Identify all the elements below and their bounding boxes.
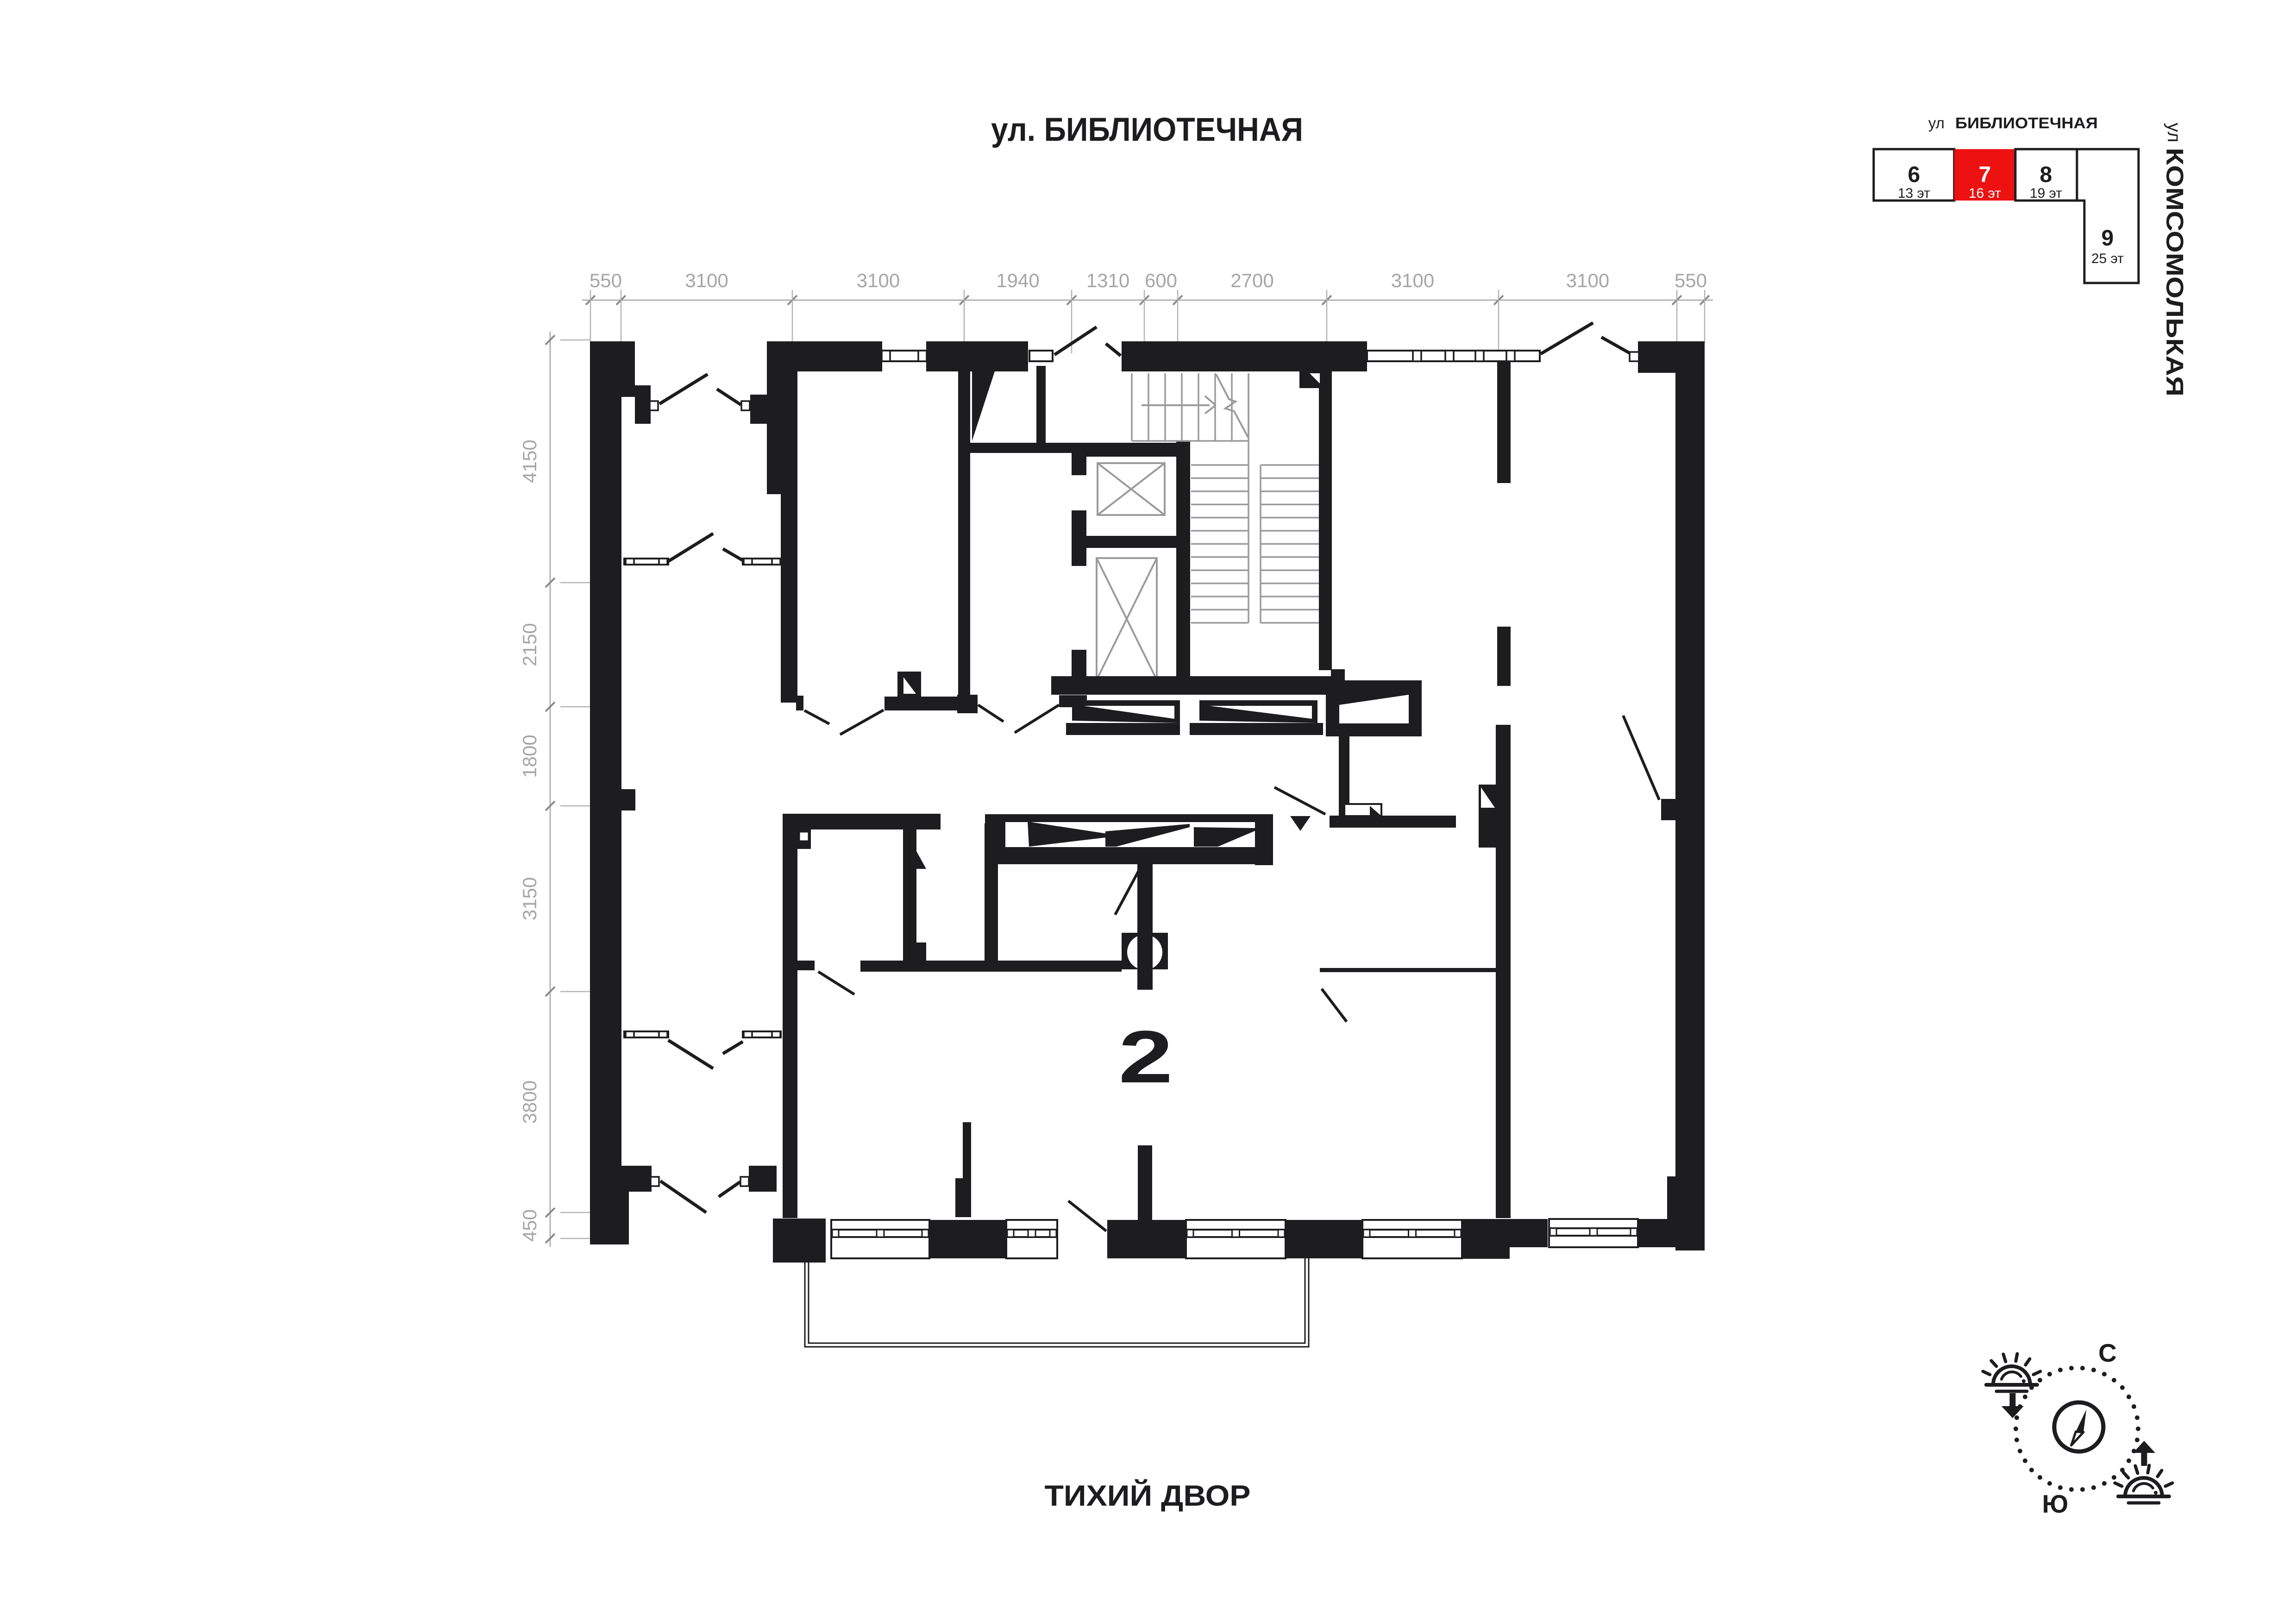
svg-text:3150: 3150	[519, 877, 540, 920]
svg-text:25 эт: 25 эт	[2091, 251, 2124, 266]
svg-text:4150: 4150	[519, 440, 540, 483]
svg-text:3100: 3100	[1391, 270, 1434, 291]
svg-text:3800: 3800	[519, 1081, 540, 1124]
svg-text:ТИХИЙ ДВОР: ТИХИЙ ДВОР	[1045, 1479, 1251, 1512]
svg-text:6: 6	[1908, 163, 1920, 187]
svg-text:С: С	[2098, 1338, 2117, 1367]
svg-text:550: 550	[590, 270, 622, 291]
svg-text:ул: ул	[2164, 123, 2184, 142]
svg-text:19 эт: 19 эт	[2030, 186, 2062, 201]
svg-text:ул. БИБЛИОТЕЧНАЯ: ул. БИБЛИОТЕЧНАЯ	[991, 112, 1303, 148]
svg-text:7: 7	[1979, 163, 1991, 187]
svg-text:КОМСОМОЛЬКАЯ: КОМСОМОЛЬКАЯ	[2161, 148, 2188, 396]
svg-text:450: 450	[519, 1209, 540, 1242]
svg-text:600: 600	[1145, 270, 1177, 291]
svg-text:3100: 3100	[857, 270, 900, 291]
svg-text:1310: 1310	[1086, 270, 1129, 291]
svg-text:3100: 3100	[1566, 270, 1609, 291]
svg-text:16 эт: 16 эт	[1969, 186, 2001, 201]
svg-text:2150: 2150	[519, 623, 540, 666]
svg-text:БИБЛИОТЕЧНАЯ: БИБЛИОТЕЧНАЯ	[1955, 114, 2098, 132]
svg-text:2: 2	[1118, 1015, 1173, 1098]
svg-text:9: 9	[2102, 226, 2114, 251]
svg-text:550: 550	[1675, 270, 1707, 291]
svg-text:Ю: Ю	[2042, 1489, 2069, 1518]
svg-text:8: 8	[2040, 163, 2052, 187]
svg-text:1800: 1800	[519, 735, 540, 778]
svg-text:2700: 2700	[1230, 270, 1273, 291]
svg-text:1940: 1940	[996, 270, 1039, 291]
svg-text:13 эт: 13 эт	[1898, 186, 1930, 201]
svg-text:3100: 3100	[685, 270, 728, 291]
svg-text:ул: ул	[1928, 114, 1945, 132]
